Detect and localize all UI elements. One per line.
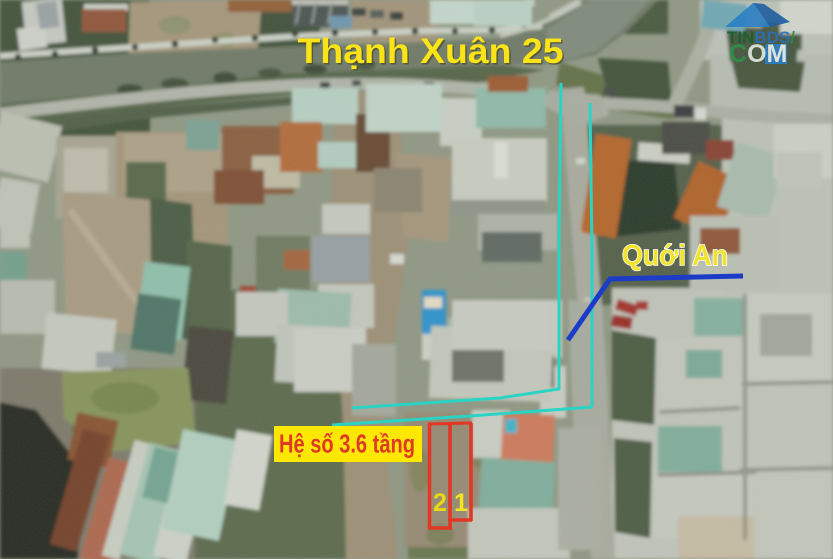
svg-text:Thạnh Xuân 25: Thạnh Xuân 25 xyxy=(298,32,564,71)
svg-text:Hệ số 3.6 tầng: Hệ số 3.6 tầng xyxy=(279,429,415,459)
svg-text:2: 2 xyxy=(433,489,447,517)
svg-text:Quới An: Quới An xyxy=(622,240,728,272)
svg-text:COM: COM xyxy=(729,40,787,68)
svg-text:1: 1 xyxy=(454,489,468,517)
